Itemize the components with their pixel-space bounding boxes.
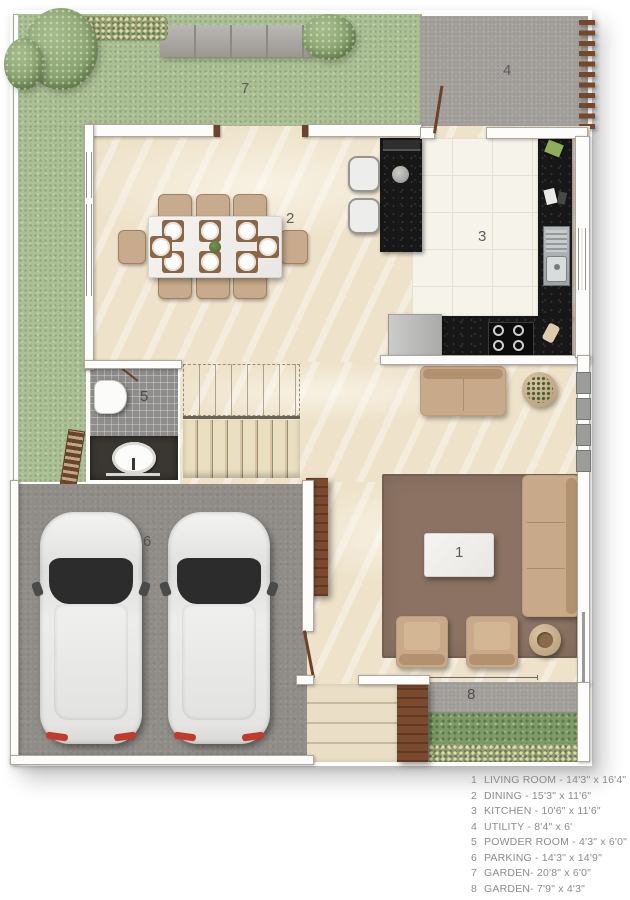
kitchen-shelf bbox=[383, 140, 420, 151]
legend-number: 7 bbox=[462, 866, 477, 882]
car-windshield bbox=[177, 558, 261, 604]
hob-burner bbox=[513, 325, 524, 336]
plant-leaves bbox=[526, 376, 553, 403]
sofa-cushion-line bbox=[527, 568, 565, 569]
bar-stool bbox=[348, 156, 380, 192]
room-label-utility: 4 bbox=[503, 62, 511, 79]
hob-burner bbox=[493, 325, 504, 336]
sofa-cushion-line bbox=[527, 522, 565, 523]
legend-text: DINING - 15'3" x 11'6" bbox=[484, 789, 628, 805]
room-label-garden-bottom: 8 bbox=[467, 686, 475, 703]
dining-chair bbox=[118, 230, 146, 264]
wall-south-mid bbox=[358, 675, 430, 685]
wall-powder-north bbox=[84, 360, 182, 369]
car-taillight bbox=[114, 732, 137, 742]
legend-number: 3 bbox=[462, 804, 477, 820]
tree-icon bbox=[4, 38, 44, 90]
wall-east-garden8 bbox=[577, 682, 590, 762]
legend: 1 LIVING ROOM - 14'3" x 16'4" 2 DINING -… bbox=[462, 773, 628, 897]
potted-plant-icon bbox=[522, 372, 557, 407]
stairs-treads bbox=[183, 420, 300, 478]
sofa-backrest bbox=[566, 478, 577, 614]
legend-text: UTILITY - 8'4" x 6' bbox=[484, 820, 628, 836]
legend-item: 2 DINING - 15'3" x 11'6" bbox=[462, 789, 628, 805]
legend-item: 4 UTILITY - 8'4" x 6' bbox=[462, 820, 628, 836]
wood-deck-panel bbox=[397, 684, 428, 762]
refrigerator bbox=[388, 314, 442, 360]
car-roof bbox=[182, 604, 256, 720]
armchair-seat bbox=[474, 622, 510, 650]
dimension-tick bbox=[537, 675, 538, 680]
wall-utility-south bbox=[486, 127, 588, 139]
legend-item: 8 GARDEN- 7'9" x 4'3" bbox=[462, 882, 628, 898]
room-label-kitchen: 3 bbox=[478, 228, 486, 245]
wall-kitchen-living bbox=[380, 355, 590, 365]
wall-south-parking bbox=[10, 755, 314, 765]
legend-text: PARKING - 14'3" x 14'9" bbox=[484, 851, 628, 867]
legend-number: 2 bbox=[462, 789, 477, 805]
legend-item: 6 PARKING - 14'3" x 14'9" bbox=[462, 851, 628, 867]
stone-path bbox=[160, 25, 312, 57]
coffee-maker-icon bbox=[392, 166, 409, 183]
sofa-cushion-line bbox=[463, 379, 464, 411]
room-label-garden-top: 7 bbox=[241, 80, 249, 97]
legend-number: 8 bbox=[462, 882, 477, 898]
window-east-living bbox=[582, 612, 585, 682]
bar-stool bbox=[348, 198, 380, 234]
entry-steps bbox=[300, 684, 397, 762]
legend-number: 4 bbox=[462, 820, 477, 836]
garden8-concrete bbox=[428, 682, 578, 712]
hob-burner bbox=[513, 340, 524, 351]
room-label-parking: 6 bbox=[143, 533, 151, 550]
table-centerpiece bbox=[209, 241, 221, 253]
wall-north-left bbox=[84, 124, 214, 137]
sink-faucet bbox=[132, 458, 135, 470]
door-jamb bbox=[214, 125, 220, 137]
legend-text: POWDER ROOM - 4'3" x 6'0" bbox=[484, 835, 628, 851]
dining-chair bbox=[280, 230, 308, 264]
legend-text: LIVING ROOM - 14'3" x 16'4" bbox=[484, 773, 628, 789]
place-setting bbox=[150, 236, 172, 258]
armchair bbox=[466, 616, 518, 668]
car-taillight bbox=[242, 732, 265, 742]
armchair-seat bbox=[404, 622, 440, 650]
wall-south-stub bbox=[296, 675, 314, 685]
window-west bbox=[86, 152, 92, 198]
louver-fin bbox=[576, 372, 591, 394]
car bbox=[40, 512, 142, 744]
stairs-upper-dashed bbox=[183, 364, 300, 416]
kitchen-counter-left bbox=[380, 138, 422, 252]
dining-table bbox=[148, 216, 282, 278]
armchair-backrest bbox=[399, 654, 445, 665]
utility-fence-slats bbox=[579, 20, 595, 132]
wall-north-mid bbox=[308, 124, 422, 137]
louver-fin bbox=[576, 450, 591, 472]
sofa-three-seater bbox=[522, 475, 580, 617]
room-label-dining: 2 bbox=[286, 210, 294, 227]
legend-item: 7 GARDEN- 20'8" x 6'0" bbox=[462, 866, 628, 882]
car-windshield bbox=[49, 558, 133, 604]
place-setting bbox=[199, 220, 221, 242]
car bbox=[168, 512, 270, 744]
window-east-kitchen bbox=[578, 228, 586, 290]
wall-foyer-west bbox=[302, 480, 314, 632]
louver-fin bbox=[576, 398, 591, 420]
place-setting bbox=[236, 220, 258, 242]
side-table bbox=[529, 624, 561, 656]
place-setting bbox=[257, 236, 279, 258]
armchair-backrest bbox=[469, 654, 515, 665]
legend-text: GARDEN- 20'8" x 6'0" bbox=[484, 866, 628, 882]
side-table-center bbox=[537, 632, 553, 648]
toilet bbox=[94, 380, 127, 414]
legend-text: GARDEN- 7'9" x 4'3" bbox=[484, 882, 628, 898]
louver-fin bbox=[576, 424, 591, 446]
legend-number: 1 bbox=[462, 773, 477, 789]
legend-number: 5 bbox=[462, 835, 477, 851]
armchair bbox=[396, 616, 448, 668]
wall-west-parking bbox=[10, 480, 19, 764]
tree-icon bbox=[302, 14, 356, 60]
vanity-towel bbox=[106, 473, 160, 476]
legend-item: 5 POWDER ROOM - 4'3" x 6'0" bbox=[462, 835, 628, 851]
garden8-shrubs bbox=[428, 712, 578, 746]
dimension-line bbox=[426, 677, 538, 678]
legend-item: 3 KITCHEN - 10'6" x 11'6" bbox=[462, 804, 628, 820]
sink-drain bbox=[554, 264, 560, 270]
garden-left-strip bbox=[18, 128, 86, 482]
legend-number: 6 bbox=[462, 851, 477, 867]
place-setting bbox=[199, 251, 221, 273]
sink-drainboard bbox=[546, 230, 567, 252]
room-label-living: 1 bbox=[455, 544, 463, 561]
hob-burner bbox=[493, 340, 504, 351]
legend-item: 1 LIVING ROOM - 14'3" x 16'4" bbox=[462, 773, 628, 789]
room-label-powder: 5 bbox=[140, 388, 148, 405]
sofa-backrest bbox=[423, 369, 503, 379]
stairs-rail bbox=[183, 416, 300, 419]
window-west bbox=[86, 204, 92, 296]
legend-text: KITCHEN - 10'6" x 11'6" bbox=[484, 804, 628, 820]
floor-plan-page: 1 2 3 4 5 6 7 8 1 LIVING ROOM - 14'3" x … bbox=[0, 0, 630, 900]
place-setting bbox=[236, 251, 258, 273]
sofa-two-seater bbox=[420, 366, 506, 416]
garden8-flowers bbox=[428, 744, 578, 762]
car-roof bbox=[54, 604, 128, 720]
